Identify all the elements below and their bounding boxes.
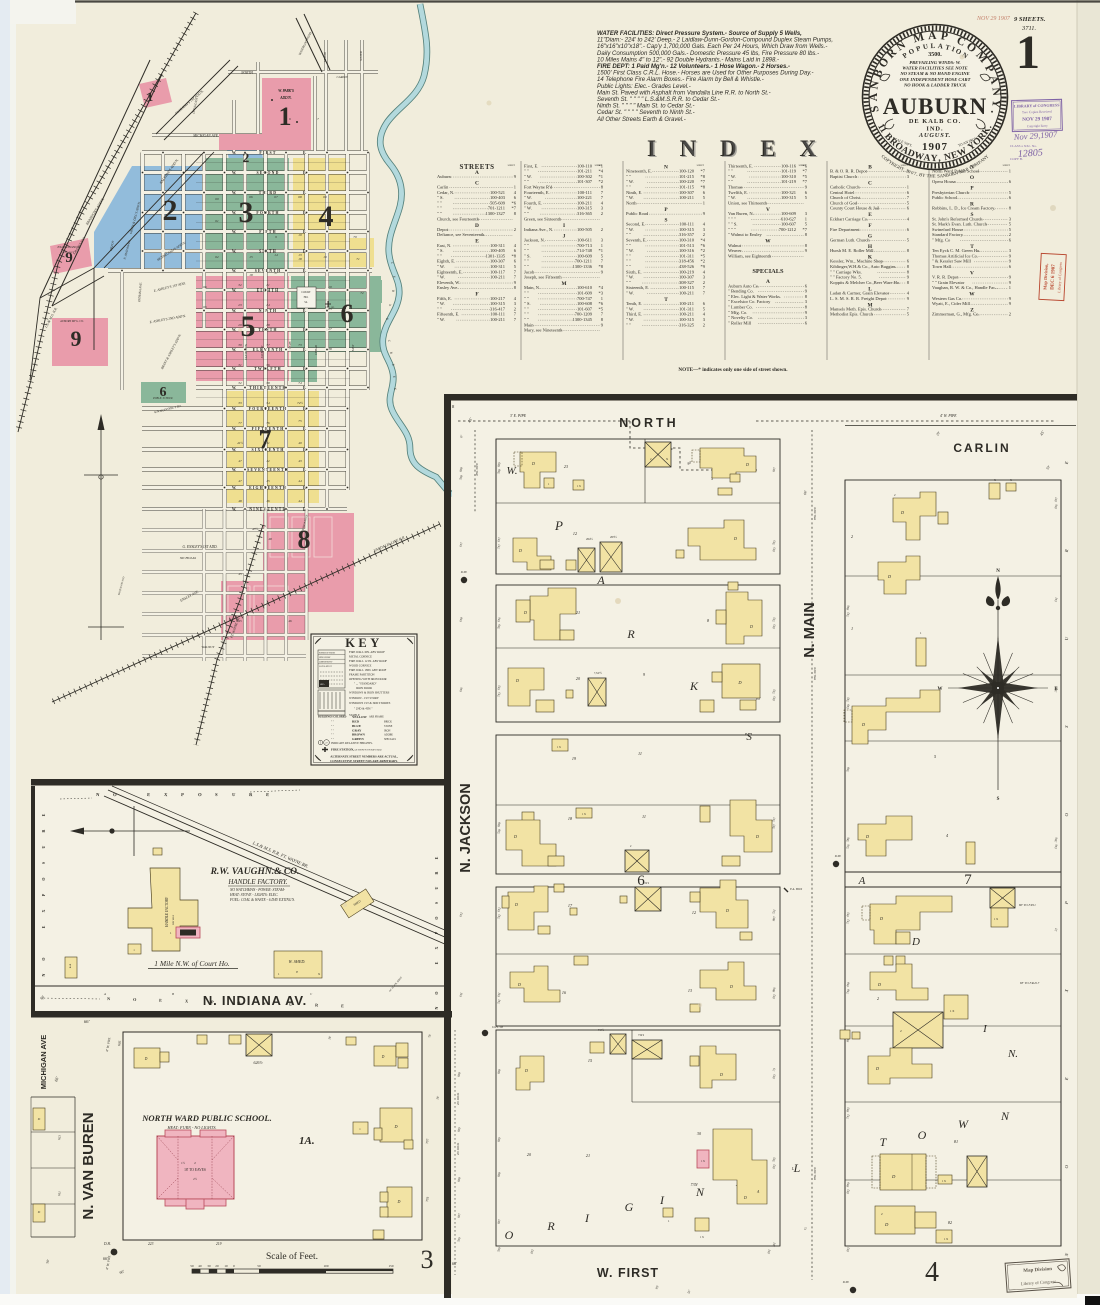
- svg-text:A: A: [858, 875, 866, 887]
- svg-text:METAL CORNICE: METAL CORNICE: [349, 655, 372, 659]
- svg-text:E.: E.: [303, 427, 306, 431]
- svg-text:NOTE—* indicates only one side: NOTE—* indicates only one side of street…: [678, 367, 788, 373]
- svg-text:101-307: 101-307: [577, 179, 593, 184]
- svg-text:15: 15: [249, 255, 253, 259]
- svg-text:Ten Eyck C. M. Green Ho.: Ten Eyck C. M. Green Ho.: [932, 248, 980, 253]
- svg-text:NOV 29 1907: NOV 29 1907: [1022, 116, 1052, 123]
- svg-text:" W.: " W.: [626, 248, 634, 253]
- svg-text:100-608: 100-608: [577, 301, 593, 306]
- svg-text:*7: *7: [803, 227, 808, 232]
- svg-text:2: 2: [601, 211, 603, 216]
- svg-text:W: W: [765, 239, 771, 245]
- svg-text:83' TO F.R.D.7: 83' TO F.R.D.7: [1020, 981, 1040, 985]
- svg-text:*9: *9: [701, 264, 706, 269]
- svg-text:9: 9: [275, 235, 277, 239]
- svg-text:EAST: EAST: [351, 344, 355, 352]
- svg-text:D: D: [393, 1124, 397, 1129]
- svg-text:" W.: " W.: [728, 174, 736, 179]
- svg-text:100-521: 100-521: [490, 190, 505, 195]
- svg-text:45: 45: [238, 572, 242, 576]
- svg-text:Methodist Epis. Church: Methodist Epis. Church: [830, 312, 874, 317]
- svg-text:B. & O. R. R. Depot: B. & O. R. R. Depot: [830, 169, 868, 174]
- svg-text:Daily Consumption 500,000 Gals: Daily Consumption 500,000 Gals.- Domesti…: [597, 51, 819, 57]
- svg-text:D.H.: D.H.: [103, 1242, 111, 1246]
- svg-text:Main St. Paved with Asphalt fr: Main St. Paved with Asphalt from Vandali…: [597, 90, 771, 96]
- svg-text:2: 2: [163, 194, 178, 227]
- svg-text:W. SHED.: W. SHED.: [289, 959, 306, 964]
- svg-text:E.: E.: [303, 348, 306, 352]
- svg-text:100-111: 100-111: [577, 190, 592, 195]
- svg-text:NINTH: NINTH: [259, 309, 277, 313]
- svg-text:17: 17: [274, 271, 278, 275]
- svg-text:N. MAIN: N. MAIN: [802, 602, 818, 658]
- svg-text:E: E: [475, 239, 479, 245]
- svg-text:Hursh M. E. Roller Mill: Hursh M. E. Roller Mill: [830, 248, 874, 253]
- svg-text:7: 7: [259, 425, 272, 454]
- svg-text:FIRE STATION,: FIRE STATION,: [331, 748, 354, 752]
- svg-text:COPY B.: COPY B.: [1010, 157, 1023, 161]
- svg-text:2: 2: [703, 232, 705, 237]
- svg-text:Thomas Artificial Ice Co.: Thomas Artificial Ice Co.: [932, 253, 978, 258]
- svg-text:1A.: 1A.: [299, 1135, 315, 1147]
- svg-text:W.: W.: [232, 269, 236, 273]
- svg-text:E: E: [41, 925, 46, 928]
- svg-text:8'W. PIPE: 8'W. PIPE: [813, 507, 817, 520]
- svg-text:1 Mile N.W. of Court Ho.: 1 Mile N.W. of Court Ho.: [154, 959, 230, 968]
- svg-text:69: 69: [323, 195, 327, 199]
- svg-text:101-211: 101-211: [577, 169, 592, 174]
- svg-text:E.: E.: [303, 151, 306, 155]
- svg-text:W.: W.: [232, 249, 236, 253]
- svg-text:101-609: 101-609: [577, 291, 593, 296]
- svg-text:66: 66: [249, 195, 253, 199]
- svg-text:1: 1: [514, 185, 516, 190]
- svg-text:" ": " ": [626, 322, 631, 327]
- svg-text:75: 75: [298, 419, 302, 423]
- svg-text:D: D: [861, 722, 865, 727]
- svg-text:100-505: 100-505: [577, 227, 593, 232]
- svg-text:264½: 264½: [586, 537, 594, 541]
- svg-text:FOURTH: FOURTH: [256, 211, 279, 215]
- svg-text:NO WATCHMAN - POWER: STEAM-: NO WATCHMAN - POWER: STEAM-: [229, 888, 286, 892]
- svg-text:E: E: [933, 173, 936, 178]
- svg-text:7,34?½: 7,34?½: [594, 672, 602, 675]
- svg-text:C: C: [475, 180, 479, 186]
- svg-text:Auburn: Auburn: [437, 174, 451, 179]
- svg-text:4: 4: [319, 200, 334, 233]
- svg-text:610-627: 610-627: [781, 216, 797, 221]
- svg-text:100-219: 100-219: [679, 269, 695, 274]
- svg-text:ALTERNATE STREET NUMBERS AR: ALTERNATE STREET NUMBERS ARE ACTUAL,: [330, 755, 398, 759]
- svg-text:*7: *7: [701, 179, 706, 184]
- svg-text:100-302: 100-302: [577, 174, 592, 179]
- svg-text:18: 18: [249, 273, 253, 277]
- svg-text:150: 150: [388, 1264, 393, 1268]
- svg-text:W.: W.: [232, 468, 236, 472]
- svg-text:3: 3: [421, 1245, 434, 1274]
- svg-text:" " S.: " " S.: [728, 222, 738, 227]
- svg-text:MICHIGAN AVE: MICHIGAN AVE: [39, 1035, 48, 1090]
- svg-text:E: E: [434, 961, 439, 964]
- svg-text:Catholic Church: Catholic Church: [830, 185, 860, 190]
- svg-text:" W.: " W.: [626, 275, 634, 280]
- svg-text:T: T: [664, 297, 668, 303]
- svg-text:*7: *7: [803, 179, 808, 184]
- svg-text:THIRTEENTH: THIRTEENTH: [249, 386, 286, 390]
- svg-text:L. S. M. S. R. R. Freight Depo: L. S. M. S. R. R. Freight Depot: [830, 296, 887, 301]
- svg-text:" ": " ": [626, 232, 631, 237]
- svg-text:" ": " ": [331, 721, 334, 724]
- svg-text:E: E: [41, 813, 46, 816]
- svg-text:101-119: 101-119: [781, 169, 797, 174]
- svg-text:9 SHEETS.: 9 SHEETS.: [1014, 16, 1046, 23]
- svg-text:" ": " ": [331, 725, 334, 728]
- svg-text:" S.: " S.: [437, 195, 444, 200]
- svg-text:101-311: 101-311: [679, 306, 694, 311]
- svg-text:W.: W.: [232, 386, 236, 390]
- svg-text:DE KALB CO.: DE KALB CO.: [909, 118, 961, 125]
- svg-text:100-316: 100-316: [679, 248, 695, 253]
- svg-text:" ": " ": [626, 243, 631, 248]
- svg-text:21: 21: [266, 283, 270, 287]
- svg-text:A: A: [596, 573, 605, 587]
- svg-text:Public Road: Public Road: [626, 211, 649, 216]
- svg-text:33: 33: [238, 401, 242, 405]
- svg-text:U: U: [41, 845, 46, 848]
- svg-text:14: 14: [274, 253, 278, 257]
- svg-text:" Bending Co.: " Bending Co.: [728, 289, 754, 294]
- svg-text:" W.: " W.: [728, 195, 736, 200]
- svg-text:SHEET: SHEET: [508, 164, 516, 167]
- svg-text:WATER FACILITIES SEE NOTE: WATER FACILITIES SEE NOTE: [902, 66, 967, 71]
- svg-text:700-747: 700-747: [577, 296, 593, 301]
- svg-text:6: 6: [341, 299, 354, 328]
- svg-text:" S.: " S.: [524, 253, 531, 258]
- svg-text:R: R: [434, 871, 439, 874]
- svg-text:76: 76: [266, 421, 270, 425]
- svg-text:A: A: [868, 92, 880, 101]
- svg-text:SPECIALS: SPECIALS: [752, 268, 784, 275]
- svg-text:O: O: [434, 916, 439, 919]
- svg-text:AUGUST.: AUGUST.: [918, 132, 951, 139]
- svg-text:77: 77: [266, 343, 270, 347]
- svg-text:N: N: [434, 1006, 439, 1009]
- svg-text:N: N: [1000, 1109, 1010, 1123]
- svg-text:700-713: 700-713: [577, 243, 593, 248]
- svg-text:N: N: [695, 1185, 705, 1199]
- svg-text:*8: *8: [599, 264, 604, 269]
- svg-text:20: 20: [328, 285, 332, 289]
- svg-text:316-325: 316-325: [679, 322, 695, 327]
- svg-text:Fort Wayne R'd: Fort Wayne R'd: [524, 185, 553, 190]
- svg-text:W.: W.: [232, 348, 236, 352]
- svg-text:" ": " ": [524, 264, 529, 269]
- svg-text:HANDLE FACTORY.: HANDLE FACTORY.: [227, 878, 288, 886]
- svg-text:" ": " ": [728, 169, 733, 174]
- svg-text:100-307: 100-307: [679, 190, 695, 195]
- svg-text:2: 2: [703, 280, 705, 285]
- svg-text:A: A: [475, 170, 479, 176]
- svg-text:W.: W.: [232, 151, 236, 155]
- svg-text:D: D: [144, 1057, 148, 1061]
- svg-text:WINDOWS & IRON SHUTTERS: WINDOWS & IRON SHUTTERS: [349, 691, 390, 695]
- svg-text:G: G: [625, 1200, 634, 1214]
- svg-text:44: 44: [298, 479, 302, 483]
- svg-text:" Roller Mill: " Roller Mill: [728, 320, 752, 325]
- svg-text:YELLOW: YELLOW: [352, 715, 368, 719]
- svg-text:45: 45: [238, 619, 242, 623]
- svg-text:BLUE: BLUE: [352, 724, 362, 728]
- svg-text:Auburn Auto Co.: Auburn Auto Co.: [728, 283, 759, 288]
- svg-text:" " ": " " ": [728, 227, 736, 232]
- svg-text:WINDOW - 1ST STORY: WINDOW - 1ST STORY: [349, 696, 380, 700]
- svg-text:Mansels Meth. Epis. Church: Mansels Meth. Epis. Church: [830, 306, 882, 311]
- svg-text:7: 7: [964, 872, 972, 888]
- svg-text:" ": " ": [524, 243, 529, 248]
- svg-text:*7: *7: [803, 169, 808, 174]
- svg-text:INDICATE RELATIVE HEIGHTS.: INDICATE RELATIVE HEIGHTS.: [331, 741, 373, 745]
- svg-text:STONE: STONE: [384, 725, 393, 728]
- svg-text:308-327: 308-327: [679, 280, 695, 285]
- svg-text:O: O: [505, 1228, 514, 1242]
- svg-text:*4: *4: [599, 285, 604, 290]
- svg-text:" 2ND & 4TH ": " 2ND & 4TH ": [354, 707, 372, 711]
- svg-text:*8: *8: [701, 174, 706, 179]
- svg-text:6: 6: [160, 385, 167, 400]
- svg-text:100-315: 100-315: [679, 317, 695, 322]
- svg-text:6: 6: [637, 873, 645, 889]
- svg-text:100-221: 100-221: [577, 195, 592, 200]
- svg-text:E: E: [159, 998, 162, 1003]
- svg-text:1 X: 1 X: [701, 1160, 705, 1163]
- svg-text:D: D: [900, 510, 904, 515]
- svg-text:66': 66': [452, 1261, 457, 1266]
- svg-text:700-1209: 700-1209: [575, 312, 593, 317]
- svg-text:ONE INDEPENDENT HOSE CART: ONE INDEPENDENT HOSE CART: [900, 77, 971, 82]
- svg-text:722'2: 722'2: [643, 882, 650, 885]
- svg-text:D: D: [745, 462, 749, 467]
- svg-text:1 X: 1 X: [557, 746, 561, 749]
- svg-text:D: D: [884, 1222, 889, 1227]
- svg-text:316-357: 316-357: [679, 232, 695, 237]
- svg-text:73N: 73N: [691, 1182, 698, 1187]
- svg-text:30: 30: [238, 343, 242, 347]
- svg-text:46: 46: [288, 619, 292, 623]
- svg-text:100-315: 100-315: [781, 195, 797, 200]
- svg-text:All Other Streets Earth & Grav: All Other Streets Earth & Gravel.-: [596, 117, 686, 123]
- svg-text:D.H.: D.H.: [842, 1280, 850, 1284]
- svg-text:28: 28: [266, 323, 270, 327]
- svg-text:1: 1: [805, 216, 807, 221]
- svg-text:714-748: 714-748: [577, 248, 593, 253]
- svg-text:" W.: " W.: [626, 179, 634, 184]
- svg-text:*6: *6: [512, 200, 517, 205]
- svg-text:" " Carriage Wks.: " " Carriage Wks.: [830, 269, 862, 274]
- svg-text:41: 41: [266, 441, 270, 445]
- svg-text:" ": " ": [626, 253, 631, 258]
- svg-text:FIRE WALL 6IN. ABV ROOF: FIRE WALL 6IN. ABV ROOF: [349, 650, 385, 654]
- svg-text:223: 223: [148, 1242, 154, 1246]
- svg-text:4: 4: [925, 1257, 939, 1288]
- svg-text:72: 72: [360, 291, 364, 295]
- svg-text:101-219: 101-219: [781, 179, 797, 184]
- svg-text:NORTH WARD PUBLIC SCHOOL.: NORTH WARD PUBLIC SCHOOL.: [141, 1113, 272, 1123]
- svg-text:E: E: [341, 1003, 344, 1008]
- svg-text:ELEVENTH: ELEVENTH: [253, 348, 284, 352]
- svg-text:67: 67: [274, 195, 278, 199]
- svg-text:29: 29: [238, 323, 242, 327]
- svg-text:I N D E X: I N D E X: [648, 137, 826, 162]
- svg-text:U: U: [434, 886, 439, 889]
- svg-text:HO.: HO.: [304, 296, 309, 299]
- svg-text:101-311: 101-311: [679, 253, 694, 258]
- svg-text:38: 38: [266, 381, 270, 385]
- svg-text:Swinefard House: Swinefard House: [932, 227, 963, 232]
- svg-text:MICHIGAN AVE.: MICHIGAN AVE.: [192, 134, 219, 138]
- svg-text:Public School: Public School: [932, 195, 958, 200]
- svg-text:*8: *8: [512, 253, 517, 258]
- svg-text:" ": " ": [524, 211, 529, 216]
- svg-text:P: P: [554, 518, 563, 533]
- svg-text:*2: *2: [701, 248, 706, 253]
- svg-text:SPECIALS: SPECIALS: [384, 738, 397, 741]
- svg-text:21: 21: [576, 610, 580, 615]
- svg-text:40: 40: [298, 441, 302, 445]
- svg-text:2: 2: [194, 1161, 196, 1165]
- svg-text:316-417: 316-417: [490, 306, 506, 311]
- svg-text:Carlin: Carlin: [437, 185, 449, 190]
- svg-text:100-307: 100-307: [490, 259, 506, 264]
- svg-text:E: E: [868, 212, 872, 218]
- svg-text:A: A: [937, 42, 943, 50]
- svg-text:BAR: BAR: [69, 963, 72, 968]
- svg-text:219: 219: [216, 1242, 222, 1246]
- svg-text:1: 1: [703, 200, 705, 205]
- svg-text:" W.: " W.: [437, 275, 445, 280]
- svg-text:" ": " ": [728, 179, 733, 184]
- svg-text:E.: E.: [303, 269, 306, 273]
- svg-text:1300-1327: 1300-1327: [486, 211, 506, 216]
- svg-text:D: D: [381, 1055, 385, 1059]
- svg-text:43: 43: [298, 459, 302, 463]
- svg-text:B: B: [868, 165, 872, 171]
- svg-text:V: V: [766, 207, 770, 213]
- svg-text:P: P: [181, 792, 184, 797]
- svg-text:100-607: 100-607: [781, 222, 797, 227]
- svg-text:D: D: [749, 624, 753, 629]
- svg-text:GRAY: GRAY: [352, 728, 362, 732]
- svg-text:SHEET: SHEET: [1003, 164, 1011, 167]
- svg-text:HEAT: FURN - NO LIGHTS.: HEAT: FURN - NO LIGHTS.: [166, 1125, 216, 1130]
- svg-text:*1: *1: [599, 248, 604, 253]
- svg-text:27: 27: [328, 327, 332, 331]
- svg-text:734'2: 734'2: [638, 1034, 645, 1037]
- svg-text:9: 9: [65, 250, 73, 266]
- svg-text:" " Factory No. 5.: " " Factory No. 5.: [830, 275, 862, 280]
- svg-text:W.: W.: [232, 171, 236, 175]
- svg-text:D: D: [743, 1196, 747, 1200]
- svg-text:HANDLE FACTORY: HANDLE FACTORY: [165, 896, 169, 928]
- svg-text:D: D: [513, 834, 517, 839]
- svg-text:*5: *5: [701, 253, 706, 258]
- svg-text:100-609: 100-609: [781, 211, 797, 216]
- svg-text:WATER: WATER: [359, 51, 363, 61]
- svg-text:SHINGLE ROOF: SHINGLE ROOF: [319, 657, 331, 659]
- svg-text:18' TO EAVES: 18' TO EAVES: [184, 1168, 206, 1172]
- svg-text:KEY: KEY: [345, 636, 383, 650]
- svg-text:N: N: [41, 973, 46, 976]
- svg-text:Church of God: Church of God: [830, 200, 858, 205]
- svg-text:N.: N.: [1007, 1048, 1018, 1060]
- svg-text:Depot: Depot: [437, 227, 449, 232]
- svg-text:A: A: [766, 279, 770, 285]
- svg-text:E: E: [434, 856, 439, 859]
- svg-text:NINETEENTH: NINETEENTH: [249, 507, 286, 511]
- svg-text:" " Grain Elevator: " " Grain Elevator: [932, 280, 965, 285]
- svg-text:3500.: 3500.: [928, 52, 942, 58]
- svg-text:20: 20: [215, 1264, 219, 1268]
- svg-text:700-1212: 700-1212: [779, 227, 796, 232]
- svg-text:AUBURN: AUBURN: [883, 94, 987, 119]
- svg-text:" ": " ": [524, 312, 529, 317]
- svg-text:505-609: 505-609: [490, 200, 506, 205]
- svg-text:7: 7: [317, 117, 319, 121]
- svg-text:W.: W.: [232, 448, 236, 452]
- svg-text:1 X: 1 X: [944, 1238, 948, 1241]
- svg-text:70: 70: [353, 235, 357, 239]
- svg-text:Central Hotel: Central Hotel: [830, 190, 855, 195]
- svg-text:C: C: [868, 180, 872, 186]
- svg-text:*8: *8: [701, 185, 706, 190]
- svg-text:D: D: [887, 574, 891, 579]
- svg-text:5: 5: [241, 310, 256, 343]
- svg-text:D: D: [755, 834, 759, 839]
- svg-text:100-610: 100-610: [577, 285, 593, 290]
- svg-text:11: 11: [642, 814, 646, 819]
- svg-text:438-526: 438-526: [679, 264, 695, 269]
- svg-text:100-403: 100-403: [490, 195, 506, 200]
- svg-text:WINDOWS 1ST & 3RD STORIES: WINDOWS 1ST & 3RD STORIES: [349, 701, 391, 705]
- svg-text:1: 1: [601, 243, 603, 248]
- svg-text:71: 71: [356, 257, 360, 261]
- svg-text:German Luth. Church: German Luth. Church: [830, 238, 870, 243]
- svg-text:G. ENSLEY'S 1ST ADD.: G. ENSLEY'S 1ST ADD.: [182, 545, 217, 549]
- svg-text:W.: W.: [507, 465, 518, 477]
- svg-text:74½: 74½: [297, 401, 303, 405]
- svg-text:101-215: 101-215: [679, 174, 695, 179]
- svg-text:54.: 54.: [304, 301, 308, 304]
- svg-text:Eckhart Carriage Co.: Eckhart Carriage Co.: [830, 216, 868, 221]
- svg-text:X: X: [1010, 479, 1012, 482]
- svg-text:OPENING WITH IRON DOOR: OPENING WITH IRON DOOR: [349, 677, 387, 681]
- svg-text:Fire Department: Fire Department: [830, 227, 860, 232]
- svg-text:" ": " ": [626, 264, 631, 269]
- svg-text:*6: *6: [701, 243, 706, 248]
- svg-text:Ensley Ave.: Ensley Ave.: [437, 285, 458, 290]
- svg-text:100-220: 100-220: [679, 179, 695, 184]
- svg-text:V: V: [970, 271, 974, 277]
- svg-text:" ": " ": [524, 248, 529, 253]
- svg-text:10: 10: [298, 233, 302, 237]
- svg-text:100-211: 100-211: [490, 317, 505, 322]
- svg-text:" W.: " W.: [437, 317, 445, 322]
- svg-text:*1: *1: [599, 163, 604, 168]
- svg-text:L: L: [930, 42, 935, 50]
- svg-text:2D. RICK: 2D. RICK: [456, 1092, 460, 1105]
- svg-text:23: 23: [564, 464, 568, 469]
- svg-text:X: X: [185, 998, 188, 1003]
- svg-text:10 Miles Mains 4" to 12".- 92: 10 Miles Mains 4" to 12".- 92 Double Hyd…: [597, 57, 779, 63]
